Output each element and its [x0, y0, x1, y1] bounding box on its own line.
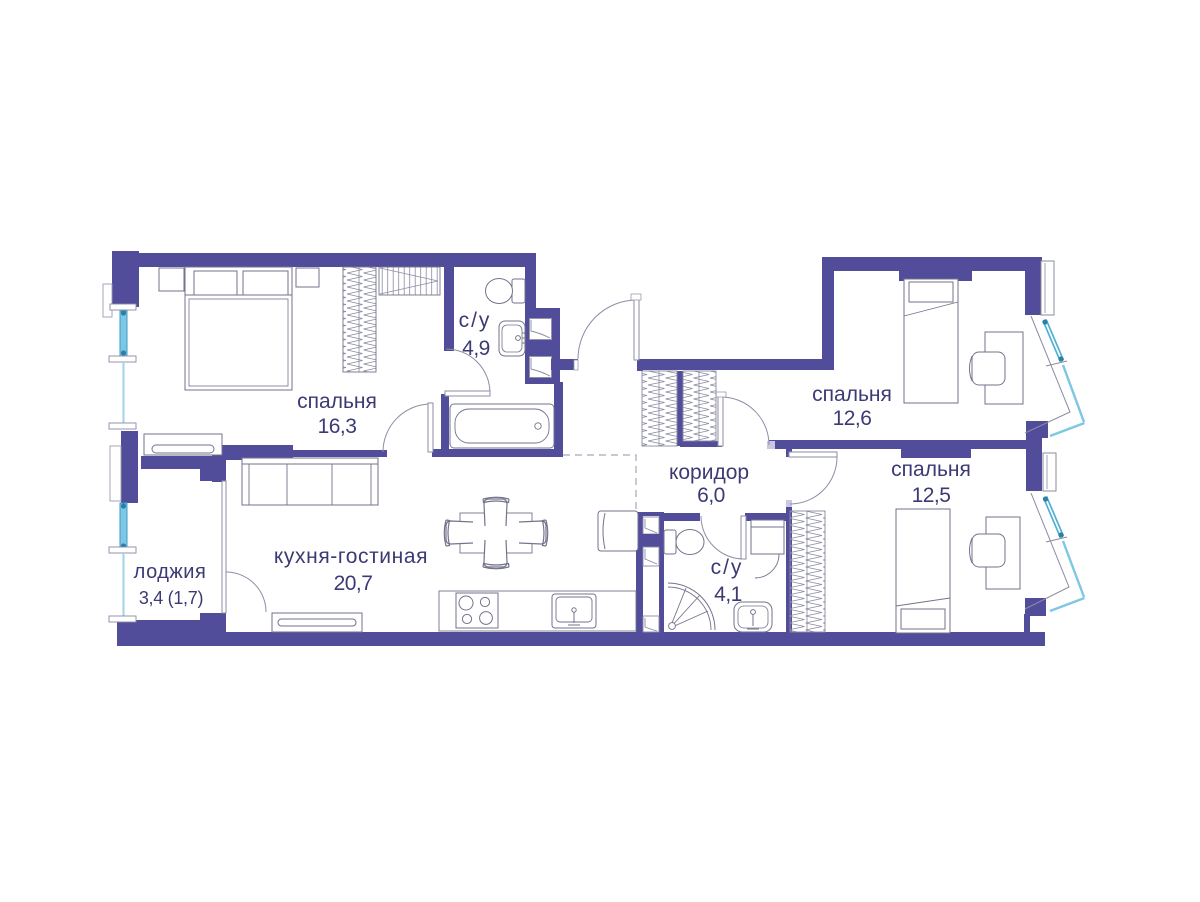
svg-text:12,6: 12,6 [833, 407, 872, 430]
svg-text:с/у: с/у [459, 309, 492, 332]
svg-text:16,3: 16,3 [318, 415, 357, 438]
svg-text:12,5: 12,5 [912, 484, 951, 507]
svg-text:коридор: коридор [669, 461, 749, 484]
svg-text:кухня-гостиная: кухня-гостиная [274, 545, 428, 568]
svg-text:лоджия: лоджия [134, 561, 207, 583]
svg-text:6,0: 6,0 [697, 484, 725, 507]
svg-text:4,1: 4,1 [714, 583, 742, 606]
svg-text:20,7: 20,7 [334, 572, 373, 595]
svg-text:3,4 (1,7): 3,4 (1,7) [139, 588, 203, 608]
svg-text:спальня: спальня [812, 383, 892, 406]
svg-text:спальня: спальня [891, 458, 971, 481]
svg-text:4,9: 4,9 [462, 337, 490, 360]
svg-text:с/у: с/у [711, 556, 744, 579]
svg-text:спальня: спальня [297, 390, 377, 413]
